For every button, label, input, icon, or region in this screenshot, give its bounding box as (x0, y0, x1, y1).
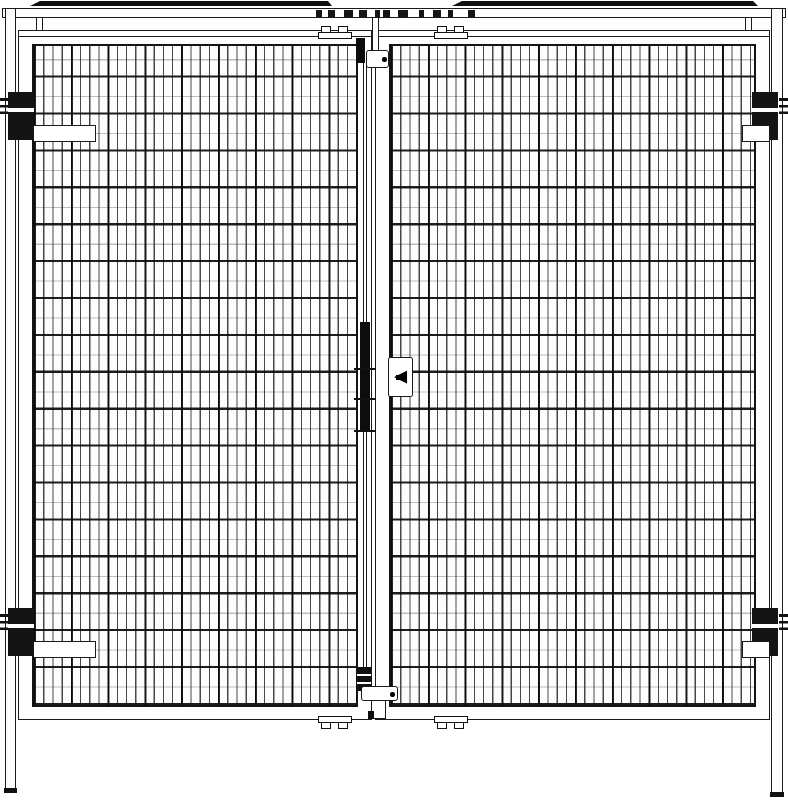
hinge-strap-left-top (33, 125, 96, 142)
hinge-left-top (8, 92, 34, 140)
right-door-mesh (389, 44, 756, 707)
left-arrow-tail (396, 375, 402, 380)
gate-elevation-drawing: ◀ (0, 0, 788, 800)
top-clamp-left (318, 26, 352, 39)
clamp-bar (434, 32, 468, 39)
hinge-strap-right-bottom (742, 641, 770, 658)
top-rod-keeper (356, 38, 365, 63)
drop-bolt-nub (368, 711, 374, 719)
bottom-latch-keeper (361, 686, 398, 701)
floor-bracket-right (434, 716, 468, 730)
rail-clip (316, 10, 322, 17)
rail-clip (433, 10, 441, 17)
left-door-mesh (32, 44, 358, 707)
latch-pin-icon (390, 692, 395, 697)
top-latch-keeper (366, 50, 389, 68)
left-post-foot (4, 788, 17, 793)
bracket-bump (338, 722, 348, 729)
latch-pin-icon (382, 57, 387, 62)
lock-rod-guide (354, 398, 376, 400)
rail-clip (328, 10, 335, 17)
header-cap-right (452, 1, 758, 6)
top-clamp-right (434, 26, 468, 39)
rail-clip (448, 10, 453, 17)
header-cap-left (30, 1, 332, 6)
rail-clip (419, 10, 424, 17)
bracket-bump (321, 722, 331, 729)
clamp-bar (318, 32, 352, 39)
hinge-strap-left-bottom (33, 641, 96, 658)
right-post-foot (770, 792, 784, 797)
lock-rod-grip (360, 322, 370, 432)
rail-clip (359, 10, 367, 17)
hinge-left-bottom (8, 608, 34, 656)
hinge-strap-right-top (742, 125, 770, 142)
top-latch-rod (372, 18, 379, 52)
rail-clip (375, 10, 390, 17)
lock-rod-guide (354, 430, 376, 432)
rail-clip (468, 10, 475, 17)
hinge-knuckles-icon (779, 95, 788, 114)
rail-clip (398, 10, 408, 17)
rail-clip (344, 10, 353, 17)
bracket-bump (454, 722, 464, 729)
hinge-knuckles-icon (779, 611, 788, 630)
bracket-bump (437, 722, 447, 729)
floor-bracket-left (318, 716, 352, 730)
header-rail (2, 8, 786, 18)
lock-rod-guide (354, 368, 376, 370)
arrow-plate: ◀ (388, 357, 413, 397)
